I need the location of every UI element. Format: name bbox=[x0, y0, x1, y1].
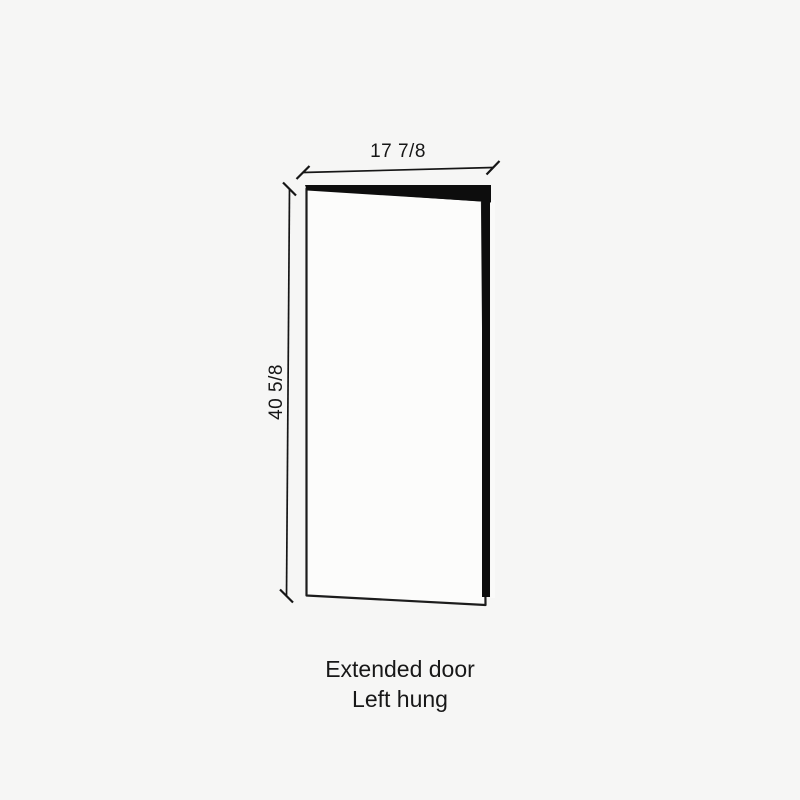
door-front-face bbox=[307, 189, 486, 606]
door-right-edge-face bbox=[482, 186, 490, 597]
caption-line-2: Left hung bbox=[0, 684, 800, 714]
width-dimension-label: 17 7/8 bbox=[303, 141, 493, 163]
height-dimension-label: 40 5/8 bbox=[266, 364, 288, 420]
width-dimension-line bbox=[303, 168, 493, 173]
door-panel bbox=[305, 185, 495, 605]
door-back-edge-highlight bbox=[491, 200, 496, 598]
width-dimension bbox=[297, 161, 500, 179]
door-diagram: 17 7/8 40 5/8 Extended door Left hung bbox=[0, 0, 800, 800]
caption-line-1: Extended door bbox=[0, 654, 800, 684]
caption: Extended door Left hung bbox=[0, 654, 800, 714]
